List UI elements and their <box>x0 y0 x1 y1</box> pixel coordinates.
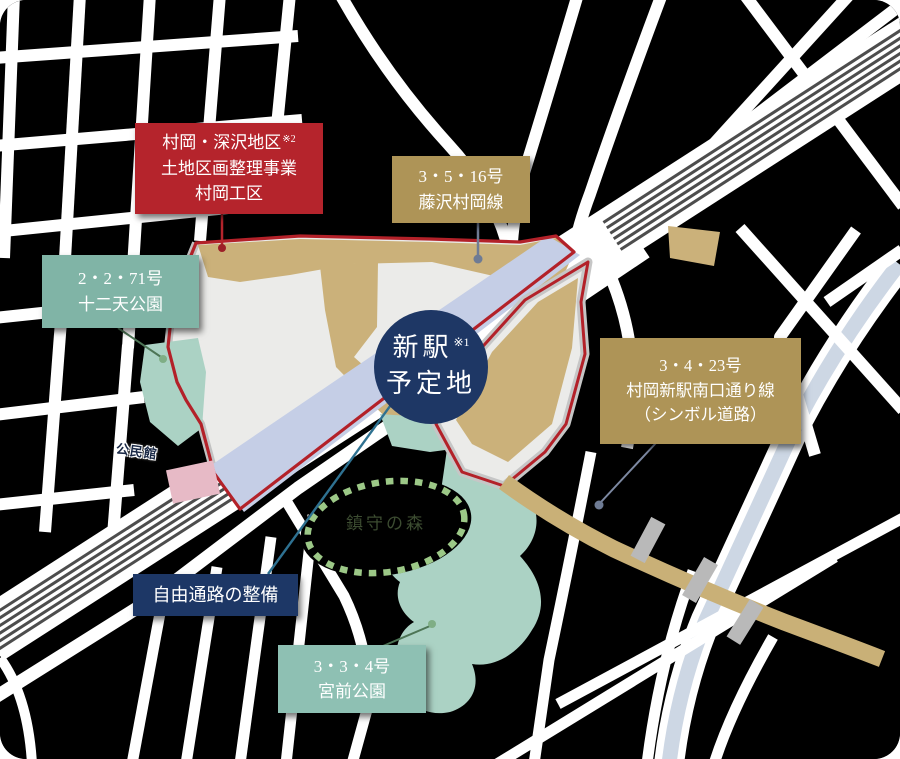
label-free-passage: 自由通路の整備 <box>133 574 298 616</box>
label-miyamae-park: 3・3・4号 宮前公園 <box>278 645 426 713</box>
shrine-forest-label: 鎮守の森 <box>306 509 466 534</box>
new-station-label: 新駅※1 予定地 <box>356 330 506 403</box>
route-3-5-16-number: 3・5・16号 <box>392 164 530 190</box>
route-3-3-4-number: 3・3・4号 <box>278 654 426 680</box>
route-3-4-23-note: （シンボル道路） <box>600 403 801 428</box>
route-2-2-71-anchor-dot <box>159 355 167 363</box>
route-3-5-16-anchor-dot <box>474 255 483 264</box>
note-2-mark: ※2 <box>282 134 295 145</box>
district-line1: 村岡・深沢地区※2 <box>135 130 323 156</box>
station-line1: 新駅※1 <box>356 330 506 366</box>
station-line2: 予定地 <box>356 366 506 402</box>
note-1-mark: ※1 <box>453 335 469 349</box>
route-3-5-16-name: 藤沢村岡線 <box>392 190 530 216</box>
route-2-2-71-name: 十二天公園 <box>42 292 199 318</box>
district-line3: 村岡工区 <box>135 181 323 207</box>
label-fujisawa-muraoka-line: 3・5・16号 藤沢村岡線 <box>392 156 530 223</box>
route-3-4-23-name: 村岡新駅南口通り線 <box>600 379 801 404</box>
district-line2: 土地区画整理事業 <box>135 156 323 182</box>
muraoka-new-station-map: 村岡・深沢地区※2 土地区画整理事業 村岡工区 3・5・16号 藤沢村岡線 2・… <box>0 0 900 759</box>
route-2-2-71-number: 2・2・71号 <box>42 266 199 292</box>
label-district-project: 村岡・深沢地区※2 土地区画整理事業 村岡工区 <box>135 123 323 214</box>
route-3-3-4-name: 宮前公園 <box>278 679 426 705</box>
district-anchor-dot <box>218 244 226 252</box>
route-3-4-23-number: 3・4・23号 <box>600 354 801 379</box>
route-3-4-23-anchor-dot <box>595 501 604 510</box>
label-junitenkoen-park: 2・2・71号 十二天公園 <box>42 255 199 328</box>
route-3-3-4-anchor-dot <box>428 620 436 628</box>
label-symbol-road: 3・4・23号 村岡新駅南口通り線 （シンボル道路） <box>600 338 801 444</box>
free-passage-text: 自由通路の整備 <box>133 582 298 609</box>
